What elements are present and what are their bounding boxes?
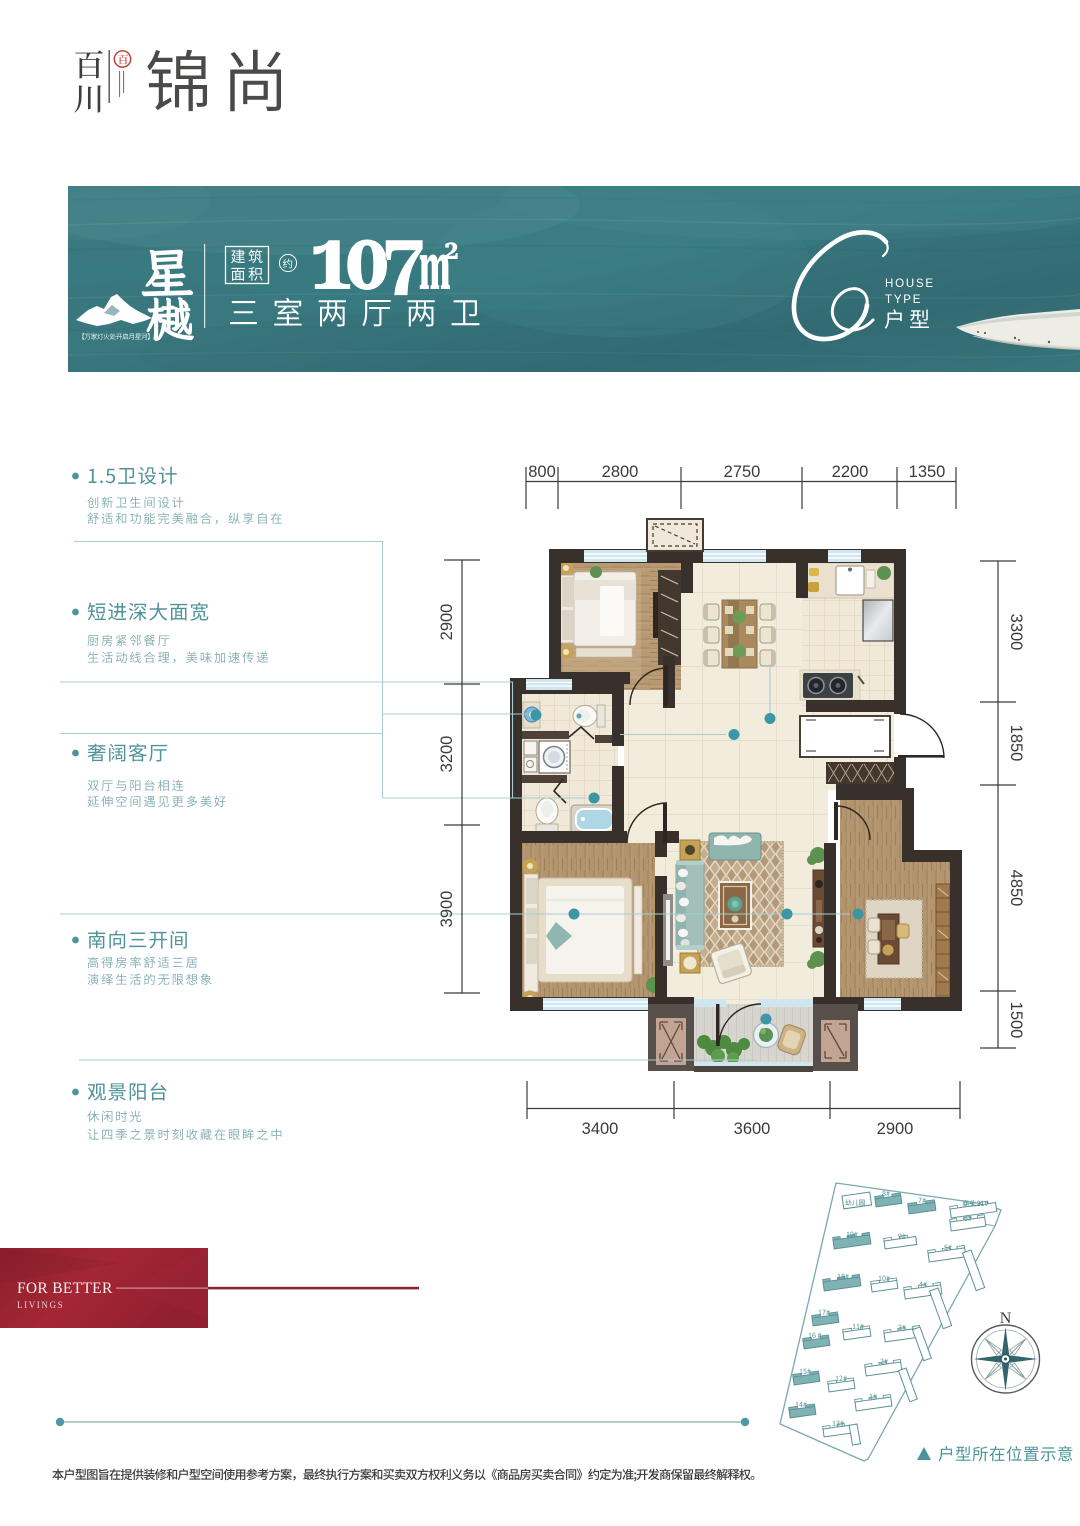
svg-text:2900: 2900 [877,1120,914,1138]
svg-text:4850: 4850 [1007,870,1025,907]
svg-text:1350: 1350 [909,463,946,481]
svg-text:2800: 2800 [602,463,639,481]
svg-text:3900: 3900 [438,891,456,928]
svg-text:N: N [1000,1310,1012,1327]
svg-text:1500: 1500 [1007,1002,1025,1039]
svg-text:2900: 2900 [438,604,456,641]
svg-text:FOR BETTER: FOR BETTER [17,1280,113,1297]
svg-text:3200: 3200 [438,736,456,773]
svg-text:3400: 3400 [582,1120,619,1138]
svg-text:1850: 1850 [1007,725,1025,762]
svg-text:TYPE: TYPE [885,294,922,306]
svg-text:2200: 2200 [832,463,869,481]
svg-text:HOUSE: HOUSE [885,278,935,290]
svg-text:3600: 3600 [734,1120,771,1138]
svg-text:3300: 3300 [1007,614,1025,651]
svg-text:800: 800 [528,463,556,481]
svg-text:2750: 2750 [724,463,761,481]
svg-text:LIVINGS: LIVINGS [17,1300,64,1310]
